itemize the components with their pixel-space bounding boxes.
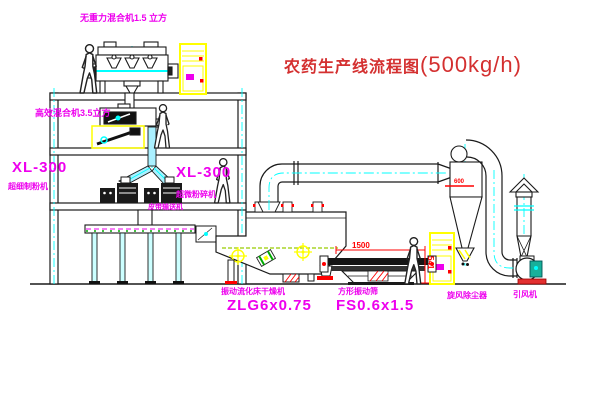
dimension-screen-height: 541 [426, 256, 434, 269]
title-text: 农药生产线流程图 [284, 59, 420, 76]
label-mill-right-model: XL-300 [176, 165, 231, 180]
gravity-mixer [86, 42, 178, 93]
label-high-eff-mixer: 高效混合机3.5立方 [35, 109, 111, 118]
label-fan: 引风机 [513, 291, 537, 299]
label-gravity-mixer: 无重力混合机1.5 立方 [80, 14, 167, 23]
y-branch-pipe [119, 127, 171, 185]
exhaust-stack [510, 178, 538, 257]
diagram-title: 农药生产线流程图(500kg/h) [284, 52, 522, 78]
discharge-chute [138, 210, 152, 226]
label-screen-name: 方形振动筛 [338, 288, 378, 296]
label-dryer-name: 振动流化床干燥机 [221, 288, 285, 296]
label-mill-right-name: 超微粉碎机 [176, 191, 216, 199]
label-cyclone: 旋风除尘器 [447, 292, 487, 300]
label-screen-model: FS0.6x1.5 [336, 298, 414, 313]
dimension-screen-length: 1500 [352, 242, 370, 250]
title-capacity: (500kg/h) [420, 52, 522, 77]
label-mill-left-name: 超细制粉机 [8, 183, 48, 191]
control-cabinet-1 [180, 44, 206, 94]
dimension-cyclone: 600 [454, 179, 464, 185]
belt-conveyor [85, 225, 195, 284]
label-belt-conveyor: 皮带输送机 [148, 204, 183, 211]
flow-diagram-canvas: 农药生产线流程图(500kg/h) 无重力混合机1.5 立方 高效混合机3.5立… [0, 0, 600, 403]
label-dryer-model: ZLG6x0.75 [227, 298, 312, 313]
label-mill-left-model: XL-300 [12, 160, 67, 175]
induced-draft-fan [516, 256, 546, 284]
